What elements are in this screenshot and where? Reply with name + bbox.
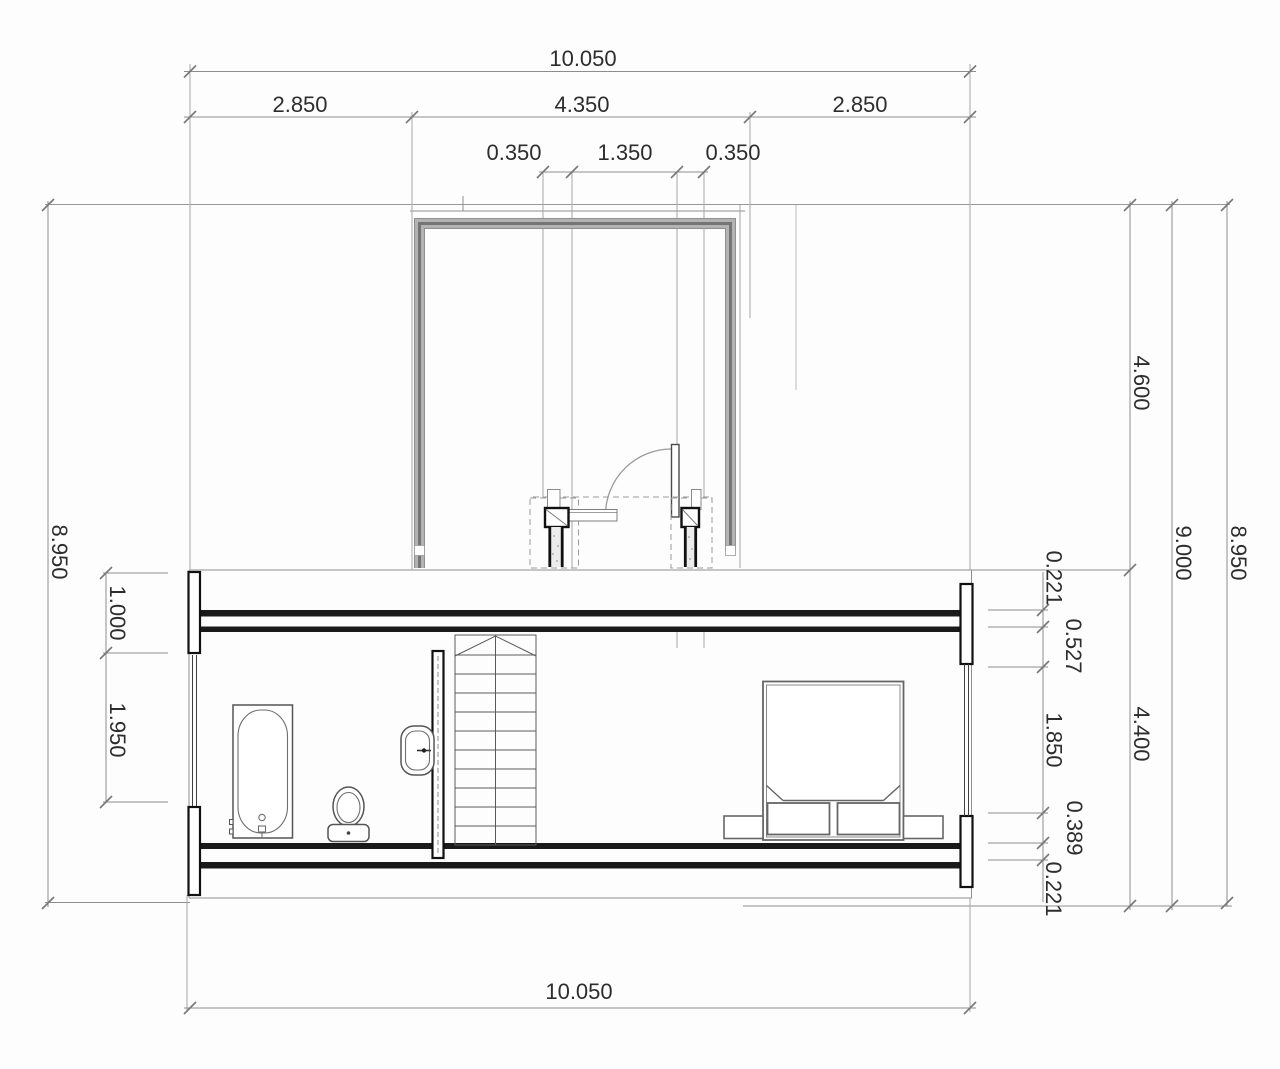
dim-label-chain-1: 0.221	[1042, 550, 1067, 605]
dim-label-chain-4: 0.389	[1062, 800, 1087, 855]
dim-top-row2: 2.850 4.350 2.850	[184, 92, 976, 123]
dim-top-row3: 0.350 1.350 0.350	[486, 140, 760, 178]
bathtub	[230, 705, 293, 838]
dim-label-left-overall: 8.950	[47, 524, 72, 579]
dim-label-chain-2: 0.527	[1061, 618, 1086, 673]
pillow-right	[838, 803, 900, 835]
door-threshold	[567, 510, 617, 522]
dim-label-row2-center: 4.350	[554, 92, 609, 117]
floor-plan-drawing: 10.050 2.850 4.350 2.850 0.350 1.350 0.3…	[0, 0, 1280, 1069]
dim-label-bottom-overall: 10.050	[545, 979, 612, 1004]
dim-right-overall: 8.950	[1221, 199, 1251, 909]
dim-right-chain: 0.221 0.527 1.850 0.389 0.221	[988, 550, 1087, 916]
dim-label-row3-left: 0.350	[486, 140, 541, 165]
dim-label-chain-5: 0.221	[1041, 861, 1066, 916]
window-right	[961, 584, 973, 887]
bed	[763, 682, 904, 841]
nightstand-right	[904, 816, 944, 839]
dim-bottom-overall: 10.050	[184, 979, 976, 1014]
dim-label-right-lower: 4.400	[1129, 706, 1154, 761]
dim-label-row2-left: 2.850	[272, 92, 327, 117]
dim-label-left-upper: 1.000	[105, 585, 130, 640]
dim-label-row3-right: 0.350	[705, 140, 760, 165]
dim-label-left-lower: 1.950	[105, 702, 130, 757]
dim-right-height: 9.000	[1166, 199, 1196, 912]
toilet	[328, 787, 369, 842]
staircase	[455, 635, 536, 845]
nightstand-left	[724, 816, 763, 839]
sink	[401, 726, 434, 775]
post-left	[545, 490, 569, 568]
dim-right-mid: 4.600 4.400	[1124, 199, 1154, 912]
dim-label-row3-center: 1.350	[597, 140, 652, 165]
window-left	[189, 572, 201, 895]
dim-label-right-height: 9.000	[1171, 525, 1196, 580]
dim-label-row2-right: 2.850	[832, 92, 887, 117]
extension-lines	[187, 64, 970, 1012]
dim-left-inner: 1.000 1.950	[100, 567, 168, 808]
post-right	[682, 490, 702, 568]
wall-end-cap-right	[726, 546, 736, 556]
door-leaf	[672, 445, 680, 518]
door-swing	[606, 445, 680, 518]
wall-end-cap-left	[415, 546, 425, 556]
sink-faucet	[422, 748, 426, 752]
dim-label-right-upper: 4.600	[1129, 355, 1154, 410]
dim-left-overall: 8.950	[42, 199, 72, 909]
dim-label-top-overall: 10.050	[549, 46, 616, 71]
floor-plan-canvas: 10.050 2.850 4.350 2.850 0.350 1.350 0.3…	[0, 0, 1280, 1069]
dim-label-right-overall: 8.950	[1226, 525, 1251, 580]
dim-label-chain-3: 1.850	[1042, 712, 1067, 767]
entry-posts	[530, 490, 713, 569]
pillow-left	[768, 803, 830, 835]
dim-top-overall: 10.050	[184, 46, 976, 78]
